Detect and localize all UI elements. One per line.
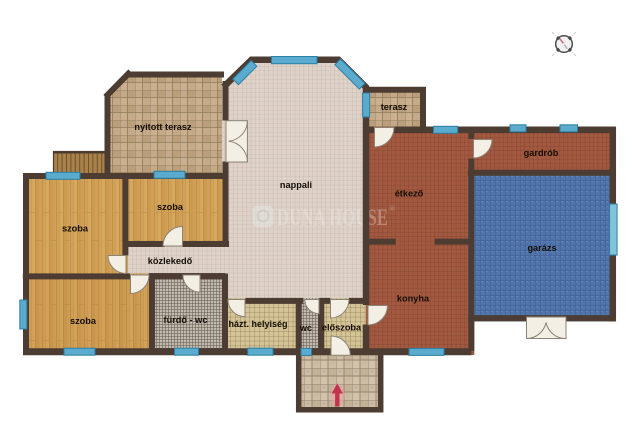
svg-text:fürdő - wc: fürdő - wc [164,315,208,325]
svg-text:gardrób: gardrób [524,148,559,158]
svg-text:házt. helyiség: házt. helyiség [228,319,287,329]
svg-text:előszoba: előszoba [322,323,362,333]
svg-text:®: ® [389,204,395,213]
svg-text:nyitott terasz: nyitott terasz [134,122,192,132]
svg-text:garázs: garázs [527,243,556,253]
svg-text:szoba: szoba [62,224,89,234]
svg-text:szoba: szoba [70,316,97,326]
svg-text:étkező: étkező [395,189,424,199]
svg-text:terasz: terasz [381,102,408,112]
svg-text:konyha: konyha [397,294,430,304]
svg-text:közlekedő: közlekedő [148,256,193,266]
svg-text:szoba: szoba [157,202,184,212]
svg-text:DUNA HOUSE: DUNA HOUSE [277,205,388,230]
svg-text:nappali: nappali [280,180,312,190]
svg-text:wc: wc [299,323,312,333]
